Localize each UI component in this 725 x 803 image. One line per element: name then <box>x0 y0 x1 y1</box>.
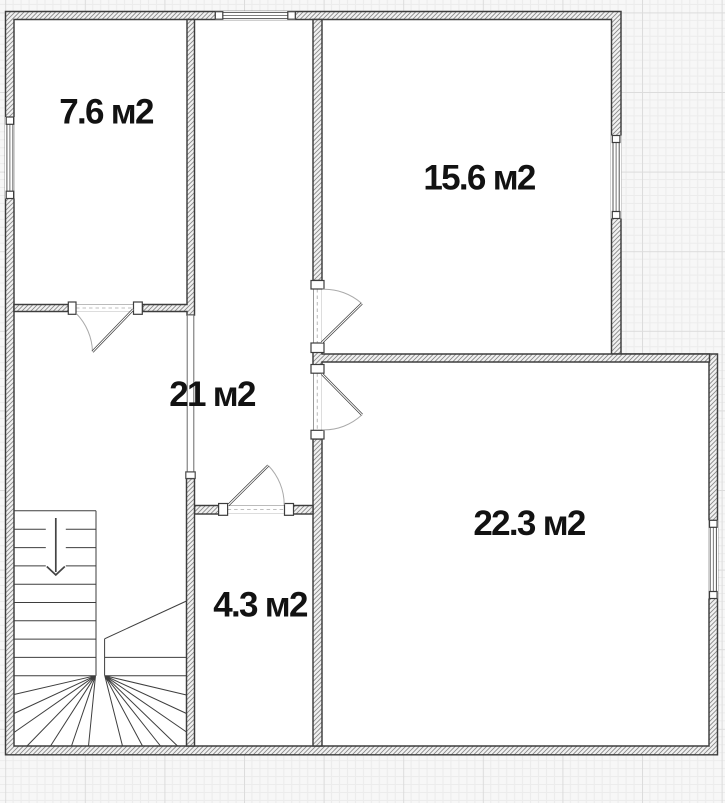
svg-text:7.6 м2: 7.6 м2 <box>59 92 154 131</box>
svg-text:4.3 м2: 4.3 м2 <box>213 586 308 625</box>
svg-text:21 м2: 21 м2 <box>169 375 256 414</box>
svg-text:15.6 м2: 15.6 м2 <box>423 159 536 198</box>
svg-text:22.3 м2: 22.3 м2 <box>473 504 586 543</box>
